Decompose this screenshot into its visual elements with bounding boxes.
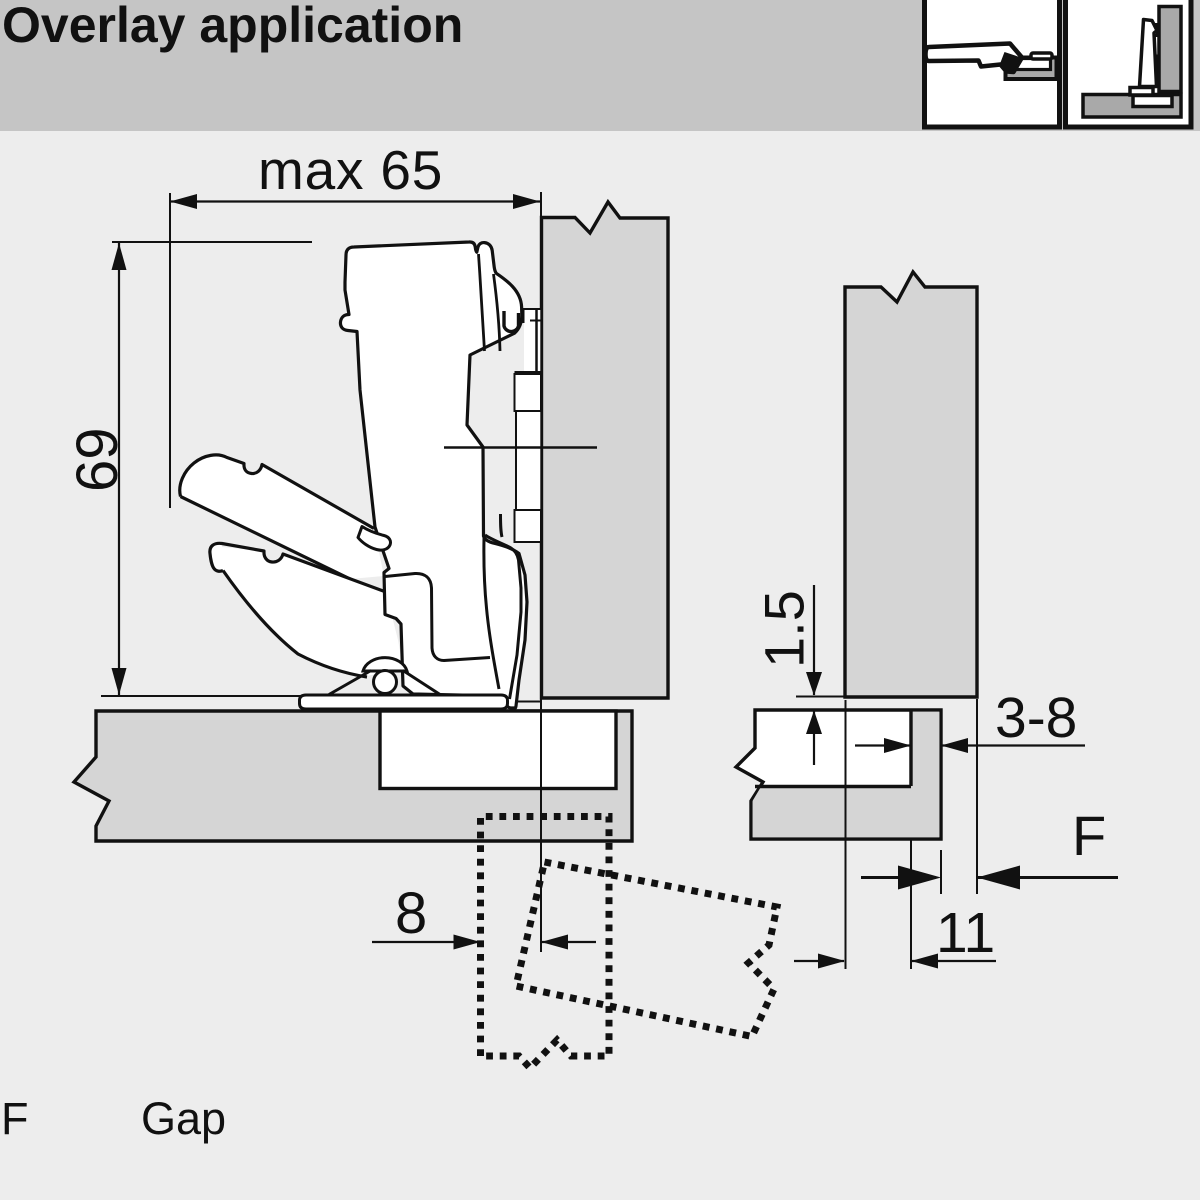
svg-text:F: F [1072,804,1106,867]
svg-text:Overlay application: Overlay application [2,0,463,53]
svg-text:11: 11 [936,901,995,965]
svg-text:69: 69 [65,427,130,492]
svg-text:F: F [1,1093,29,1144]
svg-text:Gap: Gap [141,1093,226,1144]
svg-text:3-8: 3-8 [995,686,1077,750]
svg-text:max 65: max 65 [258,139,443,201]
svg-text:8: 8 [395,881,427,946]
svg-text:1.5: 1.5 [753,590,816,668]
